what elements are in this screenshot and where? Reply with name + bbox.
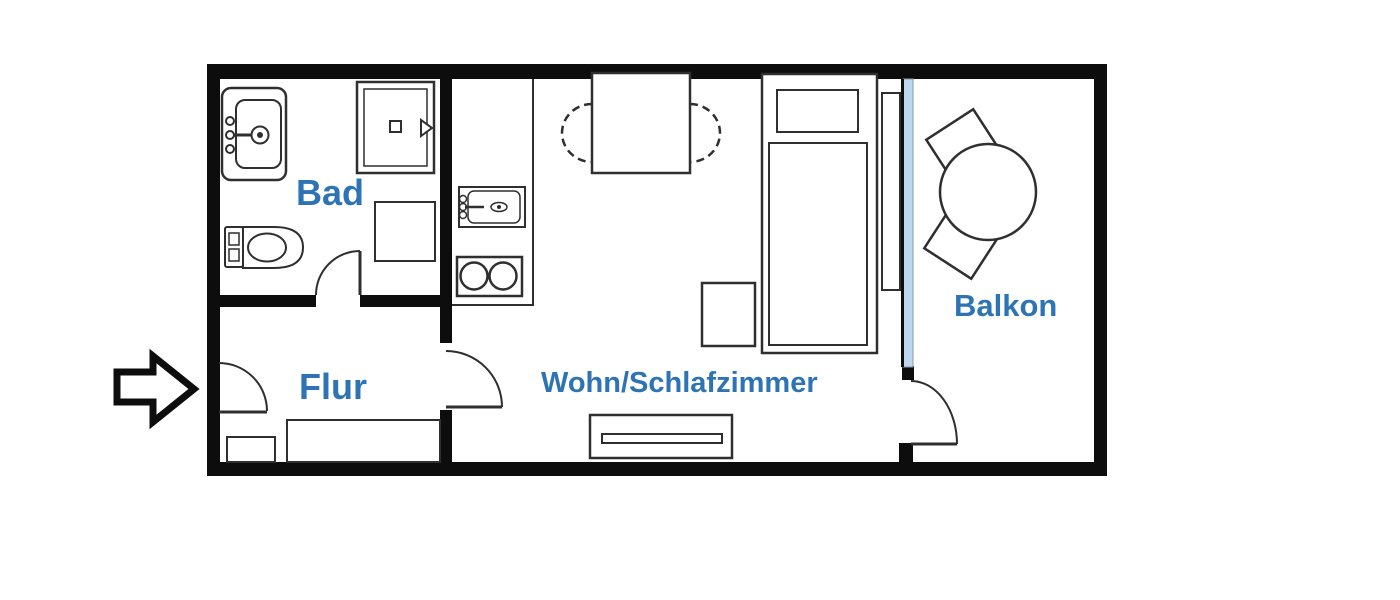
wall-bad-flur-right: [360, 295, 452, 307]
shower-icon: [357, 82, 434, 173]
entrance-door: [219, 363, 267, 412]
bed-mattress: [769, 143, 867, 345]
wall-flur-stub-vertical: [440, 410, 452, 466]
bed-icon: [762, 74, 877, 353]
wall-left: [207, 64, 220, 476]
kitchen-drain-dot: [497, 205, 501, 209]
dining-table-icon: [592, 73, 690, 173]
kitchen-sink-icon: [459, 187, 525, 227]
washbasin-icon: [222, 88, 286, 180]
hallway-cabinet-icon: [227, 437, 275, 462]
toilet-bowl-inner: [248, 234, 286, 262]
stove-burner: [490, 263, 517, 290]
living-room-door: [446, 351, 502, 407]
entrance-door-swing-arc: [219, 363, 267, 411]
stove-burner: [461, 263, 488, 290]
wall-bottom: [207, 462, 1107, 476]
washbasin-tap-knob: [226, 131, 234, 139]
balcony-seating: [924, 109, 1036, 278]
floor-plan-canvas: Bad Flur Wohn/Schlafzimmer Balkon: [0, 0, 1400, 600]
balcony-door: [911, 381, 957, 444]
window-bottom-cap: [902, 366, 914, 380]
kitchen-tap-knob: [460, 196, 467, 203]
balcony-door-stub: [899, 443, 913, 464]
washbasin-drain-dot: [257, 132, 263, 138]
chair-right-icon: [690, 104, 720, 162]
chair-left-icon: [562, 104, 592, 162]
room-label-flur: Flur: [299, 366, 367, 407]
sideboard-drawer: [602, 434, 722, 443]
toilet-tank-button: [229, 233, 239, 245]
stove-icon: [457, 257, 522, 296]
balcony-door-swing-arc: [911, 381, 957, 444]
balcony-round-table-icon: [940, 144, 1036, 240]
window-glass: [903, 79, 913, 367]
washbasin-tap-knob: [226, 145, 234, 153]
floor-plan-drawing: Bad Flur Wohn/Schlafzimmer Balkon: [0, 0, 1400, 600]
toilet-icon: [225, 227, 303, 268]
room-label-balkon: Balkon: [954, 288, 1057, 323]
bed-pillow: [777, 90, 858, 132]
wall-right: [1094, 64, 1107, 476]
entrance-arrow-icon: [117, 356, 194, 422]
washbasin-tap-knob: [226, 117, 234, 125]
bad-door: [316, 251, 360, 295]
window-frame-line: [901, 79, 904, 367]
kitchen-tap-knob: [460, 212, 467, 219]
nightstand-icon: [702, 283, 755, 346]
room-label-wohnschlafzimmer: Wohn/Schlafzimmer: [541, 367, 818, 399]
bad-door-swing-arc: [316, 251, 360, 295]
living-room-door-swing-arc: [446, 351, 502, 407]
sideboard-icon: [590, 415, 732, 458]
radiator-icon: [882, 93, 900, 290]
balcony-window: [901, 79, 913, 367]
washing-machine-icon: [375, 202, 435, 261]
room-label-bad: Bad: [296, 172, 364, 213]
wall-bad-flur-left: [207, 295, 316, 307]
toilet-tank-button: [229, 249, 239, 261]
shower-drain-square: [390, 121, 401, 132]
hallway-wardrobe-icon: [287, 420, 440, 462]
dining-area: [562, 73, 720, 173]
